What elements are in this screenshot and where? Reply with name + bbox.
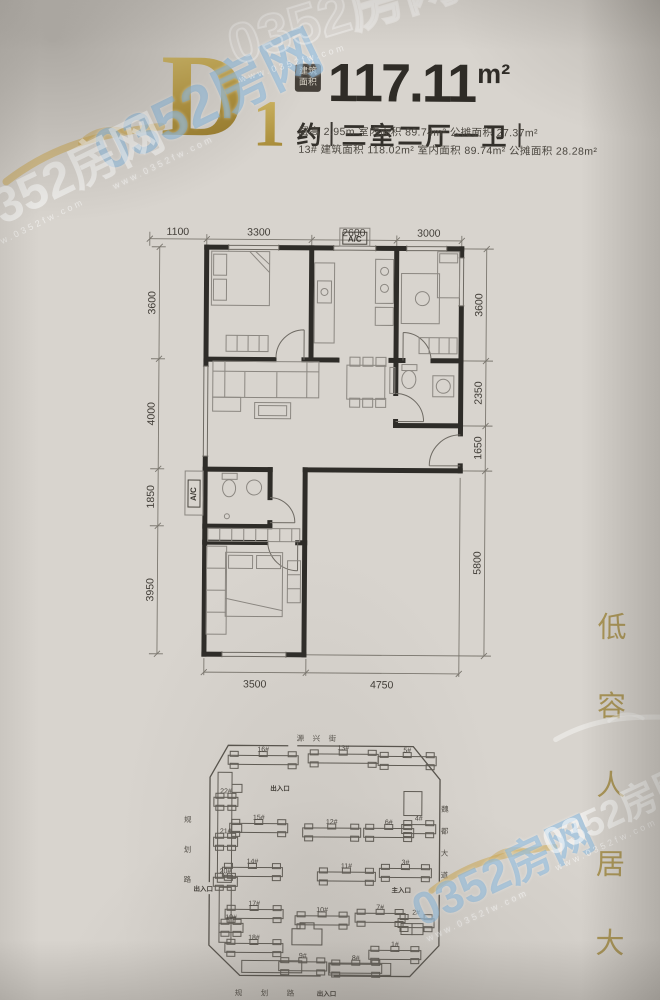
street-label-char: 源 xyxy=(297,734,305,743)
entrance-label: 主入口 xyxy=(391,885,411,894)
building-label: 3# xyxy=(402,860,410,867)
slogan-char: 容 xyxy=(597,683,626,725)
dim-label: 3300 xyxy=(247,226,271,238)
area-value: 117.11 xyxy=(328,56,476,111)
area-badge-line2: 面积 xyxy=(295,77,321,88)
slogan-char: 居 xyxy=(596,841,625,883)
street-label-char: 兴 xyxy=(313,734,321,743)
building-label: 2# xyxy=(412,910,420,917)
building-label: 22# xyxy=(220,788,232,795)
siteplan-buildings: 16#13#5#22#15#12#6#4#21#14#11#3#20#17#10… xyxy=(213,744,437,978)
plan-code-letter: D xyxy=(160,37,246,156)
dim-label: 1100 xyxy=(167,226,190,238)
street-label-char: 街 xyxy=(329,733,337,743)
siteplan-building: 12# xyxy=(303,819,361,841)
siteplan-drawing: 16#13#5#22#15#12#6#4#21#14#11#3#20#17#10… xyxy=(167,732,479,1000)
siteplan-building: 16# xyxy=(228,746,298,768)
building-label: 14# xyxy=(247,858,259,865)
dim-label: 1850 xyxy=(145,485,157,509)
furniture xyxy=(206,250,460,636)
street-label-char: 规 xyxy=(184,814,192,824)
entrance-label: 出入口 xyxy=(194,884,214,893)
dim-label: 5800 xyxy=(471,551,483,575)
building-label: 13# xyxy=(337,745,349,752)
floorplan-photo-page: D 1 建筑 面积 117.11 m² 约 三室二厅一卫 层高 2.95m 室内… xyxy=(0,0,660,1000)
street-label-char: 大 xyxy=(441,848,449,858)
siteplan-building: 6# xyxy=(364,819,414,841)
siteplan-building: 9# xyxy=(279,953,327,975)
windows xyxy=(201,244,465,659)
dim-label: 3950 xyxy=(144,578,156,602)
slogan-char: 大 xyxy=(595,920,624,962)
slogan-char: 人 xyxy=(596,762,625,804)
street-label-char: 规 xyxy=(235,987,243,997)
area-unit: m² xyxy=(477,59,510,90)
detail-line-2: 13# 建筑面积 118.02m² 室内面积 89.74m² 公摊面积 28.2… xyxy=(298,142,597,159)
building-label: 6# xyxy=(385,819,393,826)
street-label-char: 道 xyxy=(441,870,449,880)
building-label: 21# xyxy=(220,828,232,835)
entrance-label: 出入口 xyxy=(317,989,337,998)
building-label: 15# xyxy=(253,814,265,821)
building-label: 12# xyxy=(326,819,338,826)
building-label: 18# xyxy=(248,934,260,941)
siteplan-building: 13# xyxy=(308,745,378,767)
street-label-char: 路 xyxy=(184,874,192,884)
building-label: 11# xyxy=(341,863,352,870)
detail-line-1: 层高 2.95m 室内面积 89.74m² 公摊面积 27.37m² xyxy=(299,124,539,141)
dim-label: 3600 xyxy=(473,293,485,317)
building-label: 16# xyxy=(257,746,269,753)
dim-label: 3000 xyxy=(417,228,441,240)
siteplan-building: 4# xyxy=(402,816,436,838)
plan-code-number: 1 xyxy=(252,91,285,157)
building-label: 8# xyxy=(352,955,360,962)
building-label: 7# xyxy=(376,904,384,911)
dim-label: 2350 xyxy=(473,381,485,405)
street-label-char: 划 xyxy=(261,988,269,998)
building-label: 17# xyxy=(248,900,260,907)
building-label: 20# xyxy=(220,868,232,875)
dim-label: 1650 xyxy=(472,436,484,460)
street-label-char: 魏 xyxy=(441,804,449,814)
building-label: 1# xyxy=(391,941,399,948)
building-label: 19# xyxy=(225,914,237,921)
building-label: 4# xyxy=(415,816,423,823)
entrance-label: 出入口 xyxy=(270,784,290,793)
siteplan-building: 15# xyxy=(230,814,288,836)
building-label: 9# xyxy=(299,953,307,960)
street-label-char: 路 xyxy=(287,988,295,998)
vertical-slogan: 低容人居大盘 xyxy=(592,604,629,1000)
walls xyxy=(204,247,462,656)
siteplan-building: 18# xyxy=(225,934,283,956)
floorplan-drawing: A/C A/C xyxy=(139,194,513,707)
street-label-char: 都 xyxy=(441,827,449,836)
siteplan-building: 11# xyxy=(317,863,375,885)
dim-label: 3600 xyxy=(146,291,158,315)
dimension-lines xyxy=(144,232,494,677)
dim-label: 3500 xyxy=(243,678,267,690)
siteplan-building: 10# xyxy=(295,907,349,929)
area-badge: 建筑 面积 xyxy=(295,64,321,92)
dim-label: 4000 xyxy=(146,402,158,426)
street-label-char: 划 xyxy=(184,844,192,854)
building-label: 5# xyxy=(403,748,411,755)
ac-label-side: A/C xyxy=(189,487,198,501)
dim-label: 4750 xyxy=(370,679,394,691)
siteplan-building: 3# xyxy=(379,859,431,881)
building-label: 10# xyxy=(316,907,328,914)
siteplan-building: 5# xyxy=(378,747,436,769)
slogan-char: 低 xyxy=(597,604,626,646)
paper-sheet: D 1 建筑 面积 117.11 m² 约 三室二厅一卫 层高 2.95m 室内… xyxy=(0,0,660,1000)
area-badge-line1: 建筑 xyxy=(295,66,321,77)
dim-label: 2600 xyxy=(342,227,366,239)
